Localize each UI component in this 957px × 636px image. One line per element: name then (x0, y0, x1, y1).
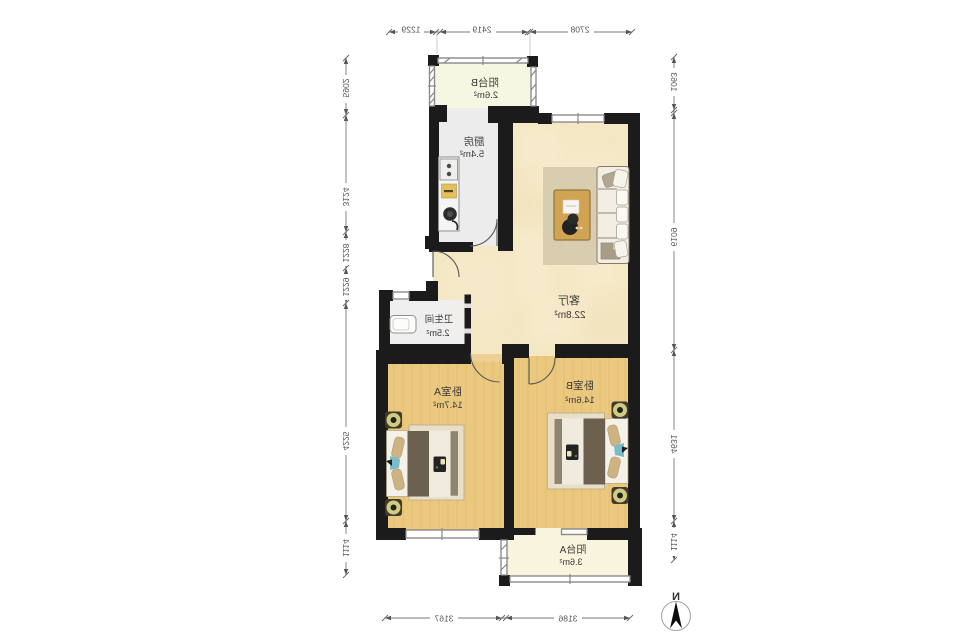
svg-text:1114: 1114 (341, 539, 351, 557)
svg-text:1228: 1228 (341, 243, 351, 262)
svg-text:1229: 1229 (341, 277, 351, 296)
svg-text:阳台B: 阳台B (471, 76, 499, 89)
svg-text:3124: 3124 (341, 187, 351, 206)
svg-text:3.6m²: 3.6m² (559, 557, 582, 567)
svg-text:卧室B: 卧室B (566, 379, 594, 392)
svg-text:3167: 3167 (434, 614, 453, 624)
svg-text:卧室A: 卧室A (434, 385, 462, 398)
svg-text:1114: 1114 (669, 533, 679, 551)
svg-text:22.8m²: 22.8m² (554, 310, 586, 321)
svg-text:卫生间: 卫生间 (425, 314, 454, 326)
svg-text:5.4m²: 5.4m² (460, 149, 484, 160)
svg-text:2.6m²: 2.6m² (474, 90, 498, 101)
svg-text:2419: 2419 (472, 25, 491, 35)
svg-text:5902: 5902 (341, 78, 351, 97)
svg-text:14.6m²: 14.6m² (565, 395, 595, 406)
svg-text:厨房: 厨房 (464, 135, 485, 148)
svg-text:3186: 3186 (558, 614, 577, 624)
svg-text:阳台A: 阳台A (559, 543, 586, 556)
svg-text:1229: 1229 (401, 25, 420, 35)
svg-text:2.5m²: 2.5m² (426, 328, 449, 338)
svg-text:4631: 4631 (669, 434, 679, 453)
svg-text:14.7m²: 14.7m² (433, 400, 463, 411)
svg-text:4225: 4225 (341, 431, 351, 450)
svg-text:客厅: 客厅 (558, 293, 580, 307)
svg-text:1063: 1063 (669, 72, 679, 91)
svg-text:6109: 6109 (669, 227, 679, 246)
svg-text:2708: 2708 (570, 25, 589, 35)
